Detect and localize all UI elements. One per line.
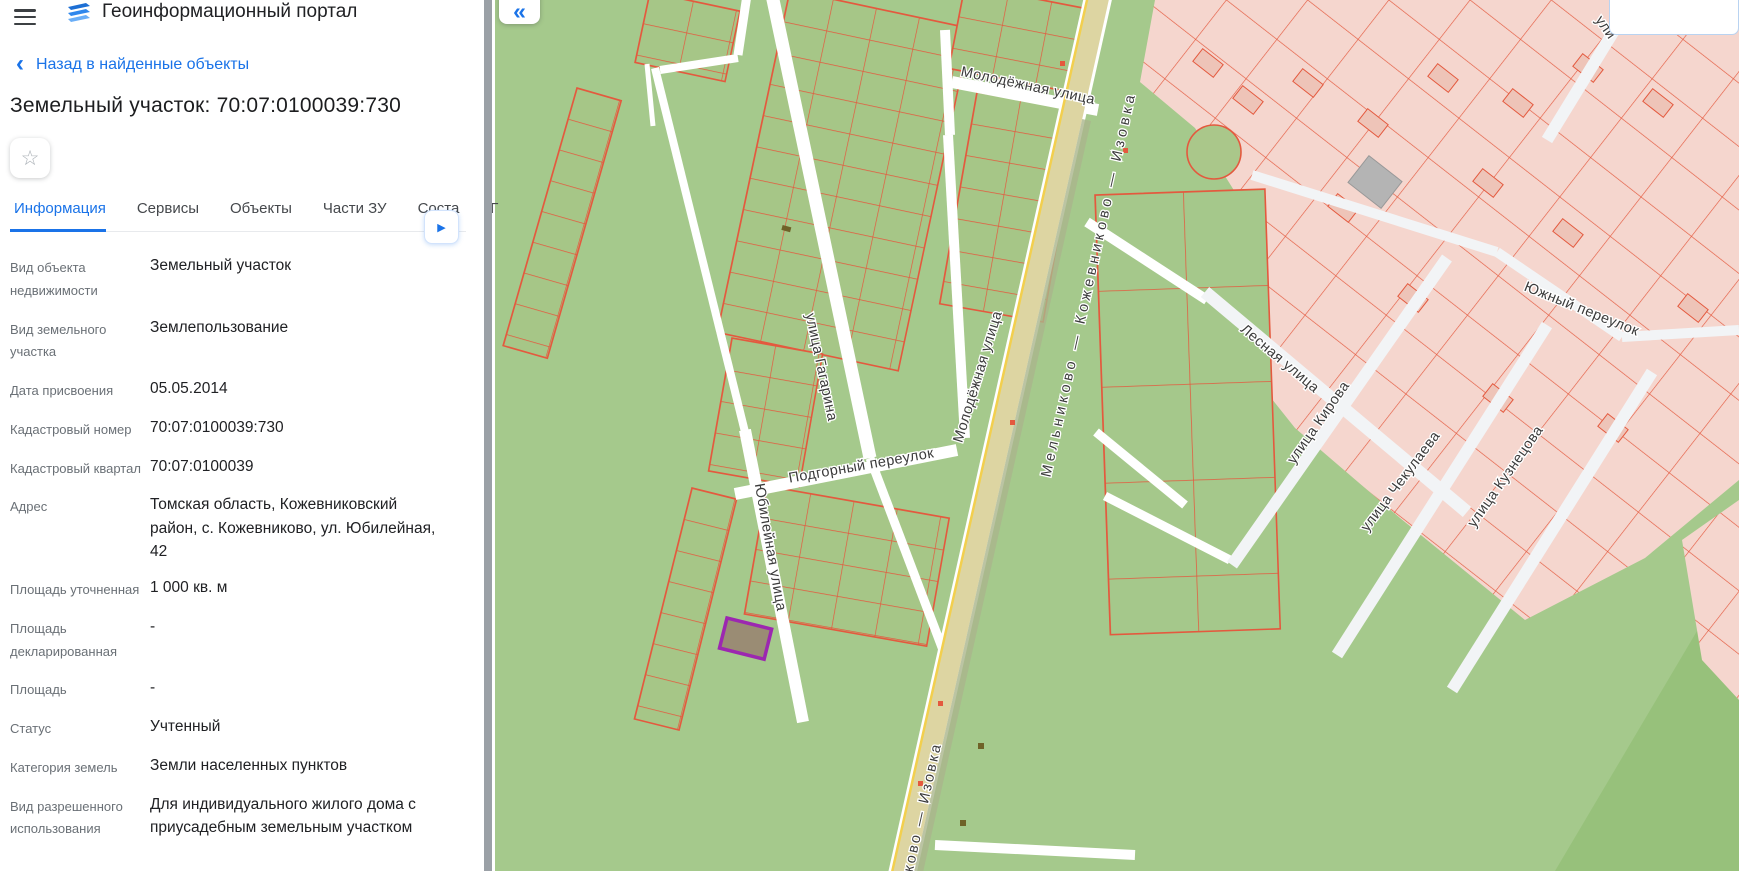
info-row: Кадастровый номер70:07:0100039:730	[10, 416, 466, 442]
info-row: Кадастровый квартал70:07:0100039	[10, 455, 466, 481]
back-link[interactable]: ‹ Назад в найденные объекты	[10, 56, 466, 74]
map-container: «	[495, 0, 1739, 871]
tabs-next-button[interactable]: ▶	[424, 210, 459, 244]
info-row: Вид объекта недвижимостиЗемельный участо…	[10, 254, 466, 303]
app-header: Геоинформационный портал	[10, 0, 466, 30]
info-row: Вид разрешенного использованияДля индиви…	[10, 793, 466, 842]
panel-scrollbar[interactable]	[484, 0, 492, 871]
info-list: Вид объекта недвижимостиЗемельный участо…	[10, 254, 466, 841]
chevrons-left-icon: «	[513, 0, 526, 24]
info-row: Категория земельЗемли населенных пунктов	[10, 754, 466, 780]
tab-services[interactable]: Сервисы	[133, 196, 199, 231]
favorite-button[interactable]: ☆	[10, 138, 50, 178]
info-row: Площадь декларированная-	[10, 615, 466, 664]
info-row: Вид земельного участкаЗемлепользование	[10, 316, 466, 365]
info-row: Площадь уточненная1 000 кв. м	[10, 576, 466, 602]
tab-information[interactable]: Информация	[10, 196, 106, 232]
app-title: Геоинформационный портал	[102, 1, 357, 23]
menu-icon[interactable]	[14, 9, 36, 25]
info-row: АдресТомская область, Кожевниковский рай…	[10, 493, 466, 563]
map-collapse-button[interactable]: «	[499, 0, 540, 24]
tab-parts[interactable]: Части ЗУ	[319, 196, 387, 231]
round-parcel	[1187, 125, 1241, 179]
tab-bar: Информация Сервисы Объекты Части ЗУ Сост…	[10, 196, 466, 232]
info-row: СтатусУчтенный	[10, 715, 466, 741]
info-row: Дата присвоения05.05.2014	[10, 377, 466, 403]
cadastral-map[interactable]: Молодёжная улица Мельниково — Кожевников…	[495, 0, 1739, 871]
star-icon: ☆	[21, 146, 40, 171]
page-title: Земельный участок: 70:07:0100039:730	[10, 94, 466, 118]
app-logo-icon	[66, 0, 92, 25]
info-row: Площадь-	[10, 676, 466, 702]
back-chevron-icon: ‹	[16, 57, 24, 71]
play-icon: ▶	[437, 221, 445, 234]
back-link-label: Назад в найденные объекты	[36, 56, 249, 74]
map-corner-box	[1609, 0, 1739, 35]
tab-objects[interactable]: Объекты	[226, 196, 292, 231]
details-panel: Геоинформационный портал ‹ Назад в найде…	[0, 0, 484, 871]
